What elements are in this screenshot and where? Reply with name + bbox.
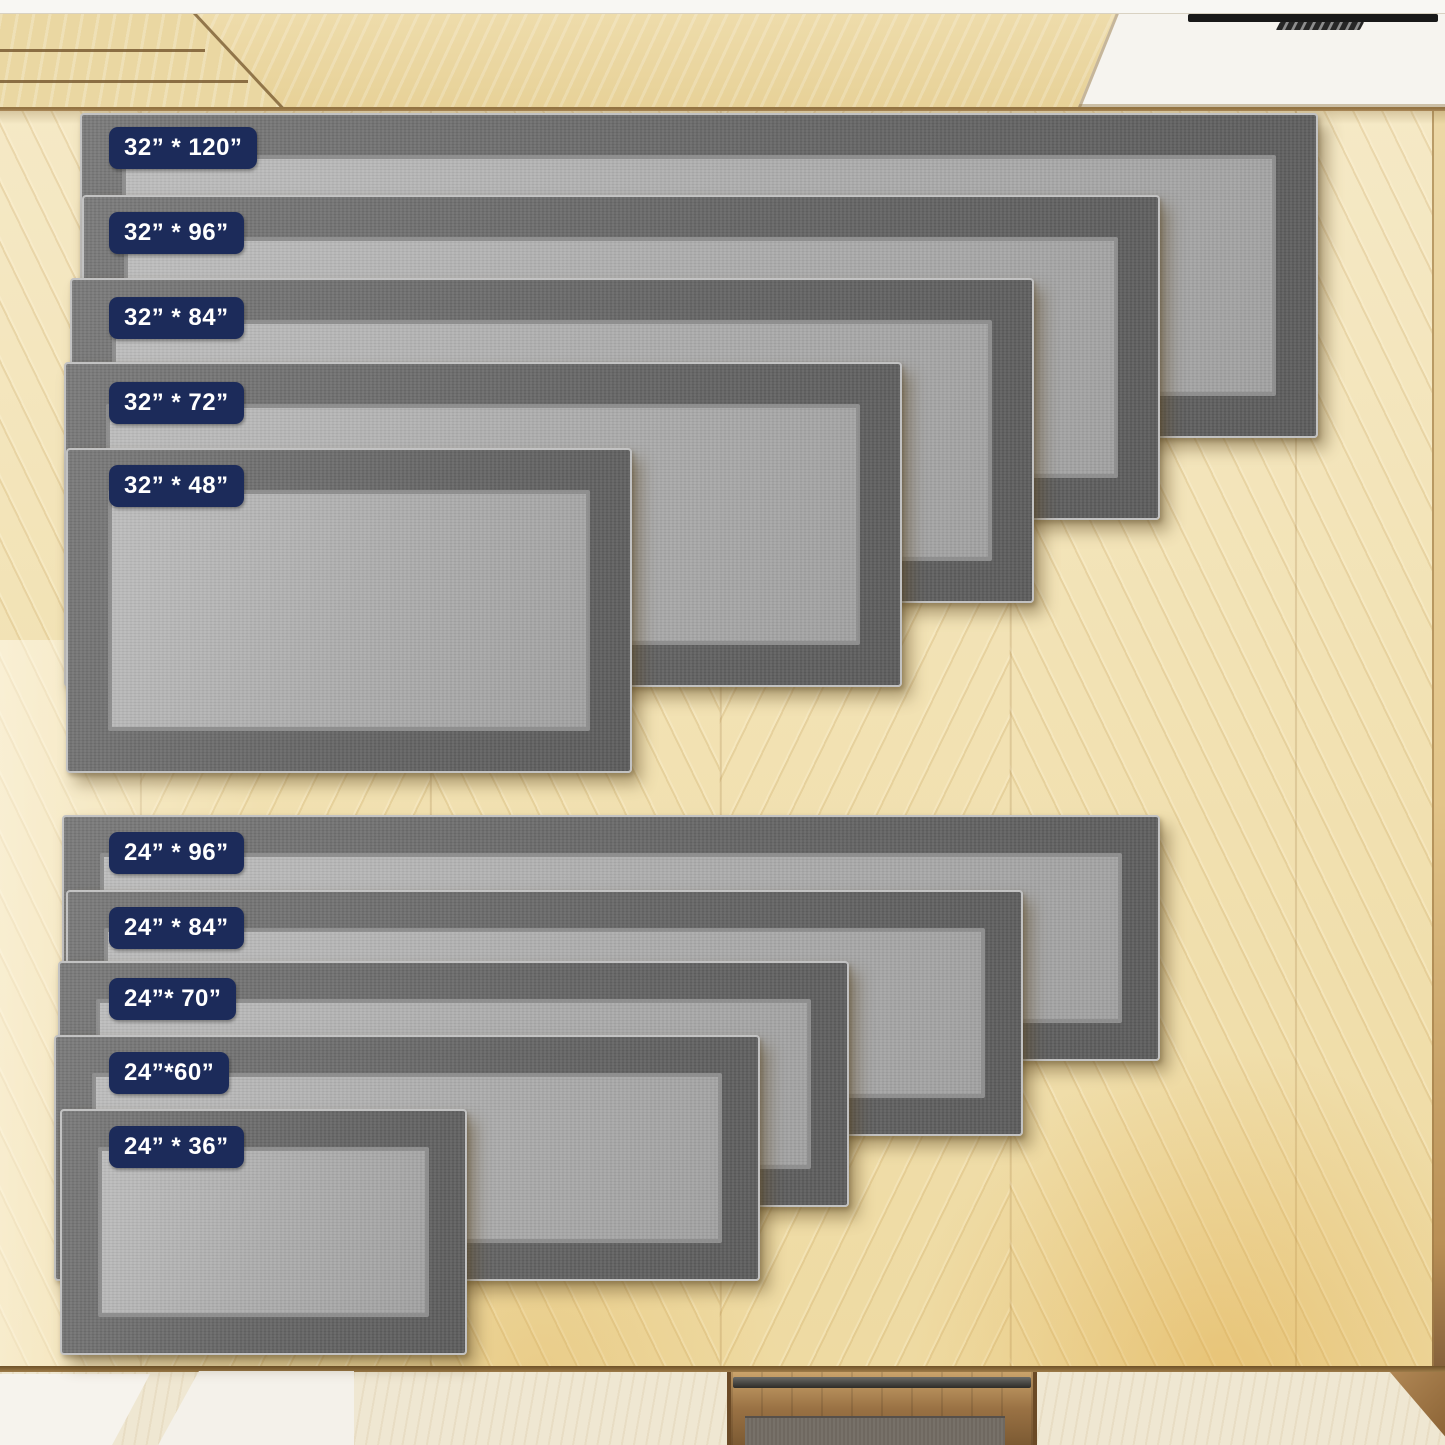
countertop-white-strip <box>0 0 1445 14</box>
rug-32x72-size-label: 32” * 72” <box>109 382 244 424</box>
rug-32x84-size-label: 32” * 84” <box>109 297 244 339</box>
rug-24x36: 24” * 36” <box>60 1109 467 1355</box>
rug-32x96-size-label: 32” * 96” <box>109 212 244 254</box>
vent-slot <box>1188 14 1438 22</box>
vent-grille <box>1276 22 1364 30</box>
entry-pit-door-track <box>733 1377 1031 1388</box>
rug-24x60-size-label: 24”*60” <box>109 1052 229 1094</box>
rug-24x70-size-label: 24”* 70” <box>109 978 236 1020</box>
cabinet-slat-line <box>0 49 205 52</box>
right-edge-plank <box>1432 105 1445 1371</box>
product-photo-stage: 32” * 120”32” * 96”32” * 84”32” * 72”32”… <box>0 0 1445 1445</box>
rug-24x84-size-label: 24” * 84” <box>109 907 244 949</box>
cabinet-slat-line <box>0 80 248 83</box>
rug-32x120-size-label: 32” * 120” <box>109 127 257 169</box>
entry-pit-mat <box>745 1416 1005 1445</box>
white-appliance-panel <box>1078 13 1445 107</box>
rug-24x36-field <box>98 1147 429 1317</box>
rug-32x48-size-label: 32” * 48” <box>109 465 244 507</box>
rug-24x36-size-label: 24” * 36” <box>109 1126 244 1168</box>
rug-32x48: 32” * 48” <box>66 448 632 773</box>
rug-24x96-size-label: 24” * 96” <box>109 832 244 874</box>
rug-32x48-field <box>108 490 590 731</box>
